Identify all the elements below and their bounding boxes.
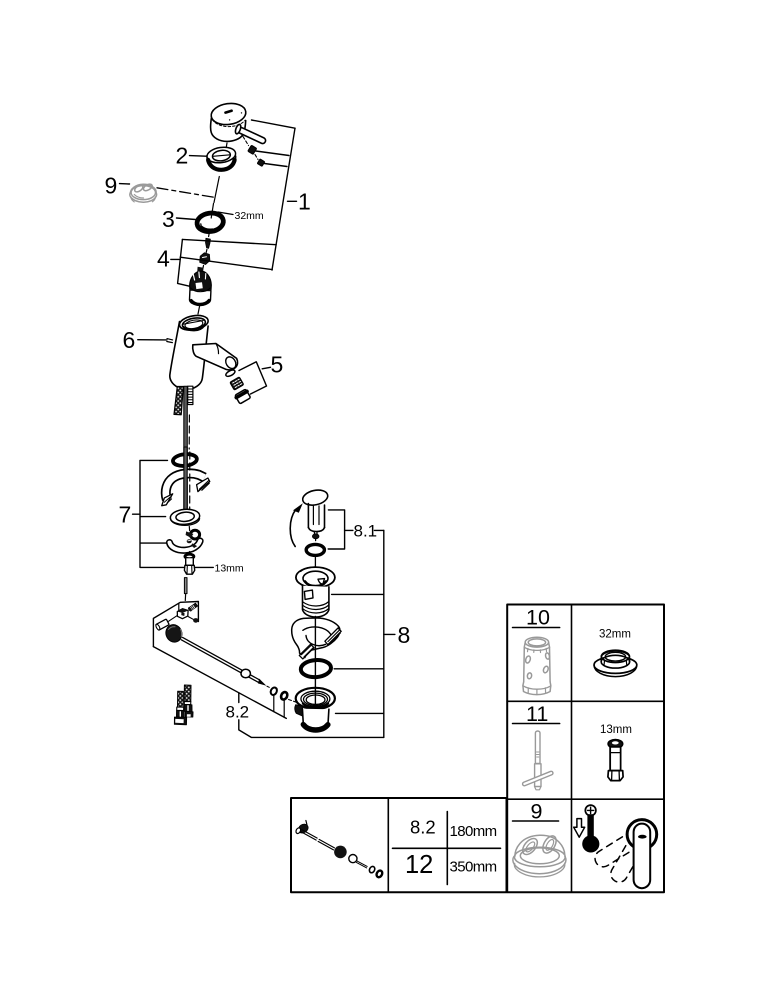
svg-text:8.1: 8.1 — [354, 522, 378, 541]
svg-text:3: 3 — [162, 206, 175, 232]
svg-text:13mm: 13mm — [600, 724, 632, 736]
svg-text:13mm: 13mm — [215, 563, 244, 575]
svg-text:32mm: 32mm — [599, 629, 631, 641]
svg-text:7: 7 — [119, 502, 132, 528]
svg-text:180mm: 180mm — [450, 823, 497, 840]
svg-text:6: 6 — [123, 327, 136, 353]
svg-text:9: 9 — [531, 800, 543, 824]
svg-text:8.2: 8.2 — [226, 703, 250, 722]
svg-text:12: 12 — [405, 851, 433, 879]
svg-text:350mm: 350mm — [450, 859, 497, 876]
svg-text:9: 9 — [105, 173, 118, 199]
svg-text:8.2: 8.2 — [410, 817, 436, 838]
svg-text:1: 1 — [298, 189, 311, 215]
svg-text:32mm: 32mm — [235, 210, 264, 222]
svg-text:5: 5 — [271, 352, 284, 378]
svg-text:11: 11 — [526, 702, 548, 726]
svg-text:10: 10 — [526, 606, 550, 630]
svg-text:8: 8 — [398, 622, 411, 648]
svg-text:4: 4 — [157, 246, 170, 272]
svg-text:2: 2 — [176, 143, 189, 169]
